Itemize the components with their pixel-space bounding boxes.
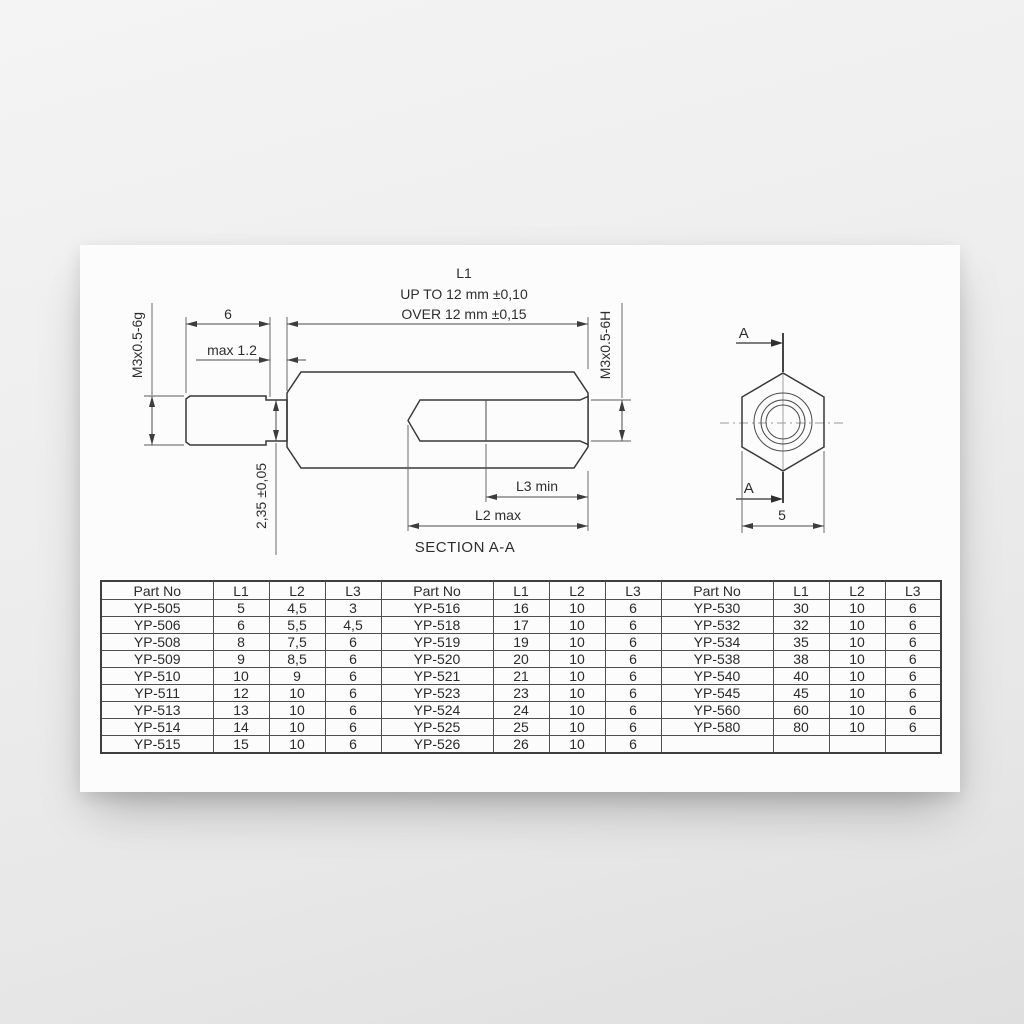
dimension-cell: 10 xyxy=(549,702,605,719)
table-row: YP-50998,56YP-52020106YP-53838106 xyxy=(101,651,941,668)
table-header-cell: Part No xyxy=(381,581,493,600)
part-no-cell: YP-508 xyxy=(101,634,213,651)
dimension-cell: 10 xyxy=(829,617,885,634)
l3-min-label: L3 min xyxy=(516,478,558,494)
table-header-cell: L2 xyxy=(829,581,885,600)
part-no-cell: YP-514 xyxy=(101,719,213,736)
product-drawing-card: 6 L1 UP TO 12 mm ±0,10 OVER 12 mm ±0,15 … xyxy=(80,245,960,792)
part-no-cell: YP-511 xyxy=(101,685,213,702)
dimension-cell: 10 xyxy=(549,736,605,754)
dimension-cell: 10 xyxy=(829,668,885,685)
dimension-cell: 5,5 xyxy=(269,617,325,634)
dimension-cell: 10 xyxy=(829,702,885,719)
dimension-cell: 10 xyxy=(829,634,885,651)
dimension-cell: 6 xyxy=(605,668,661,685)
dimension-cell: 10 xyxy=(829,685,885,702)
dimension-cell: 6 xyxy=(605,651,661,668)
dimension-cell: 6 xyxy=(885,617,941,634)
dimension-cell: 10 xyxy=(549,668,605,685)
table-row: YP-5101096YP-52121106YP-54040106 xyxy=(101,668,941,685)
l2-max-label: L2 max xyxy=(475,507,521,523)
table-header-cell: L1 xyxy=(493,581,549,600)
dimension-cell: 3 xyxy=(325,600,381,617)
dimension-cell: 10 xyxy=(829,651,885,668)
l1-tolerance-line2: OVER 12 mm ±0,15 xyxy=(401,306,526,322)
dimension-cell: 6 xyxy=(885,651,941,668)
dimension-cell: 6 xyxy=(885,600,941,617)
part-no-cell: YP-506 xyxy=(101,617,213,634)
section-letter-bottom: A xyxy=(744,480,755,497)
spec-table-head-row: Part NoL1L2L3Part NoL1L2L3Part NoL1L2L3 xyxy=(101,581,941,600)
table-row: YP-50887,56YP-51919106YP-53435106 xyxy=(101,634,941,651)
dimension-cell xyxy=(829,736,885,754)
section-arrowhead-bottom xyxy=(771,495,783,503)
dim-undercut-diameter: 2,35 ±0,05 xyxy=(253,400,276,555)
table-row: YP-51515106YP-52626106 xyxy=(101,736,941,754)
dimension-cell: 20 xyxy=(493,651,549,668)
dimension-cell: 6 xyxy=(325,634,381,651)
dimension-cell: 4,5 xyxy=(325,617,381,634)
unthreaded-max-label: max 1.2 xyxy=(207,342,257,358)
dimension-cell: 35 xyxy=(773,634,829,651)
dimension-cell: 45 xyxy=(773,685,829,702)
table-header-cell: Part No xyxy=(101,581,213,600)
dim-unthreaded-length: max 1.2 xyxy=(196,342,306,360)
part-no-cell: YP-560 xyxy=(661,702,773,719)
dimension-cell: 8 xyxy=(213,634,269,651)
part-no-cell: YP-534 xyxy=(661,634,773,651)
dimension-cell: 6 xyxy=(213,617,269,634)
table-row: YP-51112106YP-52323106YP-54545106 xyxy=(101,685,941,702)
part-no-cell: YP-525 xyxy=(381,719,493,736)
dimension-cell: 10 xyxy=(549,617,605,634)
dimension-cell: 6 xyxy=(885,702,941,719)
dimension-cell: 6 xyxy=(885,685,941,702)
dimension-cell: 10 xyxy=(829,600,885,617)
dimension-cell: 6 xyxy=(605,719,661,736)
dimension-cell: 9 xyxy=(269,668,325,685)
dimension-cell: 5 xyxy=(213,600,269,617)
part-no-cell: YP-509 xyxy=(101,651,213,668)
table-header-cell: L1 xyxy=(773,581,829,600)
part-no-cell: YP-540 xyxy=(661,668,773,685)
dimension-cell: 6 xyxy=(325,651,381,668)
dimension-cell: 4,5 xyxy=(269,600,325,617)
dimension-cell: 6 xyxy=(605,634,661,651)
dimension-cell: 12 xyxy=(213,685,269,702)
dimension-cell: 30 xyxy=(773,600,829,617)
dimension-cell: 24 xyxy=(493,702,549,719)
dimension-cell: 10 xyxy=(213,668,269,685)
dimension-cell: 6 xyxy=(885,668,941,685)
part-no-cell: YP-538 xyxy=(661,651,773,668)
part-no-cell: YP-516 xyxy=(381,600,493,617)
dimension-cell: 32 xyxy=(773,617,829,634)
dimension-cell xyxy=(885,736,941,754)
dimension-cell: 25 xyxy=(493,719,549,736)
dimension-cell: 40 xyxy=(773,668,829,685)
part-no-cell: YP-532 xyxy=(661,617,773,634)
dimension-cell: 6 xyxy=(605,702,661,719)
dimension-cell: 17 xyxy=(493,617,549,634)
dimension-cell: 14 xyxy=(213,719,269,736)
dim-female-thread: M3x0.5-6H xyxy=(591,303,631,441)
table-header-cell: L3 xyxy=(885,581,941,600)
part-no-cell: YP-513 xyxy=(101,702,213,719)
part-no-cell: YP-510 xyxy=(101,668,213,685)
hex-width-label: 5 xyxy=(778,507,786,523)
table-header-cell: L3 xyxy=(325,581,381,600)
part-no-cell: YP-545 xyxy=(661,685,773,702)
part-no-cell: YP-524 xyxy=(381,702,493,719)
dimension-cell: 6 xyxy=(605,685,661,702)
dimension-cell: 6 xyxy=(325,719,381,736)
dimension-cell: 10 xyxy=(269,719,325,736)
dimension-cell: 6 xyxy=(325,736,381,754)
dimension-cell: 7,5 xyxy=(269,634,325,651)
dimension-cell: 10 xyxy=(549,600,605,617)
dimension-cell: 16 xyxy=(493,600,549,617)
section-letter-top: A xyxy=(739,325,750,342)
stud-body-shape xyxy=(186,396,287,445)
bore-shape xyxy=(408,397,588,445)
dimension-cell: 6 xyxy=(325,668,381,685)
dimension-cell: 10 xyxy=(829,719,885,736)
dimension-cell: 10 xyxy=(269,702,325,719)
dimension-cell: 80 xyxy=(773,719,829,736)
hex-end-view: A A 5 xyxy=(720,325,846,533)
dimension-cell: 6 xyxy=(605,736,661,754)
part-no-cell: YP-519 xyxy=(381,634,493,651)
dimension-cell: 19 xyxy=(493,634,549,651)
dimension-cell: 6 xyxy=(325,702,381,719)
table-header-cell: L1 xyxy=(213,581,269,600)
dimension-cell: 60 xyxy=(773,702,829,719)
section-arrow-top: A xyxy=(736,325,783,347)
table-row: YP-50665,54,5YP-51817106YP-53232106 xyxy=(101,617,941,634)
dimension-cell: 10 xyxy=(549,651,605,668)
section-view: 6 L1 UP TO 12 mm ±0,10 OVER 12 mm ±0,15 … xyxy=(129,265,631,556)
dim-male-thread: M3x0.5-6g xyxy=(129,303,184,445)
dimension-cell: 8,5 xyxy=(269,651,325,668)
part-no-cell: YP-505 xyxy=(101,600,213,617)
part-no-cell: YP-518 xyxy=(381,617,493,634)
page-background: { "drawing": { "l1_title": "L1", "l1_tol… xyxy=(0,0,1024,1024)
male-thread-label: M3x0.5-6g xyxy=(129,312,145,378)
table-row: YP-51414106YP-52525106YP-58080106 xyxy=(101,719,941,736)
dimension-cell: 21 xyxy=(493,668,549,685)
spec-table: Part NoL1L2L3Part NoL1L2L3Part NoL1L2L3 … xyxy=(100,580,942,754)
dimension-cell: 10 xyxy=(269,736,325,754)
part-no-cell: YP-530 xyxy=(661,600,773,617)
dimension-cell: 10 xyxy=(549,719,605,736)
section-arrowhead-top xyxy=(771,339,783,347)
part-no-cell: YP-515 xyxy=(101,736,213,754)
dimension-cell: 10 xyxy=(549,685,605,702)
section-arrow-bottom: A xyxy=(736,480,783,503)
dimension-cell: 6 xyxy=(605,617,661,634)
undercut-dia-label: 2,35 ±0,05 xyxy=(253,463,269,529)
table-row: YP-51313106YP-52424106YP-56060106 xyxy=(101,702,941,719)
dimension-cell xyxy=(773,736,829,754)
table-header-cell: L2 xyxy=(269,581,325,600)
table-header-cell: L3 xyxy=(605,581,661,600)
table-row: YP-50554,53YP-51616106YP-53030106 xyxy=(101,600,941,617)
part-no-cell: YP-520 xyxy=(381,651,493,668)
dimension-cell: 6 xyxy=(325,685,381,702)
dimension-cell: 38 xyxy=(773,651,829,668)
dimension-cell: 6 xyxy=(885,719,941,736)
part-no-cell: YP-580 xyxy=(661,719,773,736)
dimension-cell: 6 xyxy=(605,600,661,617)
stud-length-label: 6 xyxy=(224,306,232,322)
dimension-cell: 9 xyxy=(213,651,269,668)
l1-tolerance-line1: UP TO 12 mm ±0,10 xyxy=(400,286,528,302)
part-no-cell: YP-526 xyxy=(381,736,493,754)
table-header-cell: Part No xyxy=(661,581,773,600)
part-no-cell xyxy=(661,736,773,754)
l1-title: L1 xyxy=(456,265,472,281)
dimension-cell: 6 xyxy=(885,634,941,651)
part-no-cell: YP-521 xyxy=(381,668,493,685)
dimension-cell: 10 xyxy=(269,685,325,702)
part-no-cell: YP-523 xyxy=(381,685,493,702)
dimension-cell: 23 xyxy=(493,685,549,702)
dimension-cell: 13 xyxy=(213,702,269,719)
dimension-cell: 10 xyxy=(549,634,605,651)
dimension-cell: 15 xyxy=(213,736,269,754)
section-title: SECTION A-A xyxy=(415,539,516,556)
table-header-cell: L2 xyxy=(549,581,605,600)
dimension-cell: 26 xyxy=(493,736,549,754)
female-thread-label: M3x0.5-6H xyxy=(597,311,613,379)
